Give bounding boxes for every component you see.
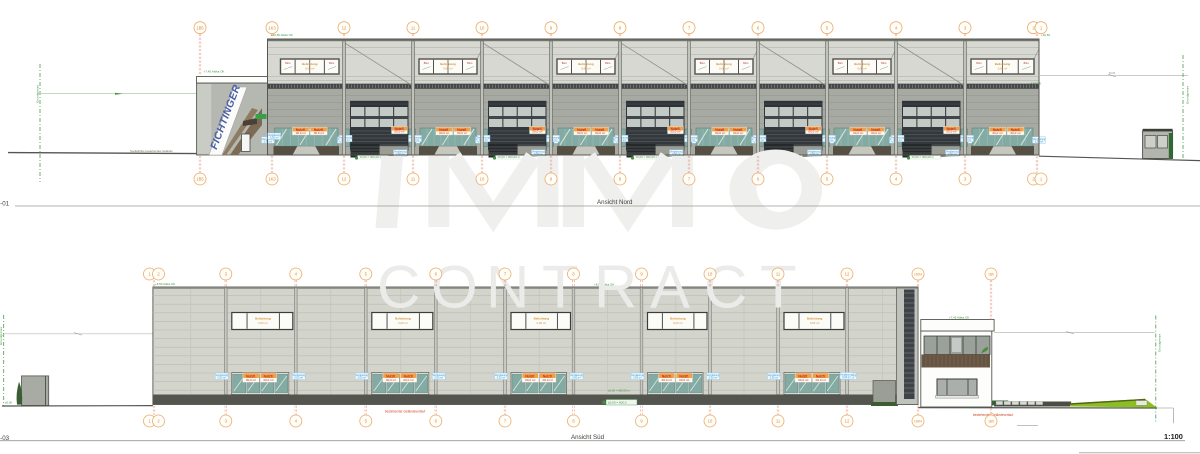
svg-text:T: T [542,254,579,321]
svg-text:1DK4: 1DK4 [914,273,922,277]
svg-text:12: 12 [845,419,850,424]
svg-text:Büro: Büro [467,62,473,65]
svg-text:00,0 m²: 00,0 m² [577,131,587,135]
svg-text:+8,50 Attika OK: +8,50 Attika OK [155,282,175,286]
svg-text:±0,00 = 000,00 m: ±0,00 = 000,00 m [498,155,521,159]
svg-text:Grundgrenze: Grundgrenze [1186,86,1190,104]
svg-text:00,0 m²: 00,0 m² [439,131,449,135]
svg-text:±0,00 = 000,00 m: ±0,00 = 000,00 m [912,155,935,159]
svg-text:±0,00 = 000,0: ±0,00 = 000,0 [608,401,627,405]
svg-text:00,0 m²: 00,0 m² [946,130,956,134]
svg-text:12: 12 [342,177,347,182]
svg-text:0,00 m²: 0,00 m² [673,321,683,325]
svg-text:0,00 m²: 0,00 m² [842,376,851,379]
svg-text:00,0 m²: 00,0 m² [679,378,689,382]
svg-text:00,0 m²: 00,0 m² [715,131,725,135]
svg-text:Belichtung: Belichtung [440,62,456,66]
svg-text:00,0 m²: 00,0 m² [670,130,680,134]
svg-text:00,0 m²: 00,0 m² [1010,131,1020,135]
svg-text:00,0 m²: 00,0 m² [595,131,605,135]
svg-text:45,00: 45,00 [1109,71,1116,75]
svg-text:00,0 m²: 00,0 m² [853,131,863,135]
svg-text:0,00 m²: 0,00 m² [709,377,718,380]
svg-text:00,0 m²: 00,0 m² [816,378,826,382]
svg-text:0,00 m²: 0,00 m² [218,377,227,380]
svg-text:Belichtung: Belichtung [578,62,594,66]
svg-text:00,0 m²: 00,0 m² [532,130,542,134]
svg-text:0,00 m²: 0,00 m² [443,67,453,71]
svg-text:00,0 m²: 00,0 m² [314,131,324,135]
svg-text:00,0 m²: 00,0 m² [263,378,273,382]
svg-text:N: N [486,254,529,321]
svg-text:O: O [431,254,478,321]
svg-text:10: 10 [708,272,713,277]
svg-text:Büro: Büro [700,62,706,65]
svg-text:00,0 m²: 00,0 m² [457,131,467,135]
svg-text:±0,00 = 000,00 m: ±0,00 = 000,00 m [608,388,630,392]
svg-text:Büro: Büro [743,62,749,65]
svg-text:A-03: A-03 [0,435,10,442]
svg-text:Büro: Büro [881,62,887,65]
svg-text:±0,00 = 000,00 m: ±0,00 = 000,00 m [636,155,659,159]
svg-text:±0,00: ±0,00 [5,400,12,404]
svg-text:00,0 m²: 00,0 m² [543,378,553,382]
svg-text:Sockelhöhe bestehendes Gelände: Sockelhöhe bestehendes Gelände [130,149,173,153]
svg-text:+7,45 Attika OK: +7,45 Attika OK [949,316,969,320]
svg-text:10: 10 [480,25,485,30]
svg-text:1B5: 1B5 [988,420,994,424]
svg-text:00,0 m²: 00,0 m² [246,378,256,382]
svg-text:0,00 m²: 0,00 m² [581,67,591,71]
svg-text:00,0 m²: 00,0 m² [296,131,306,135]
svg-text:bestehender Geländeverlauf: bestehender Geländeverlauf [385,410,425,414]
svg-text:Grundgrenze: Grundgrenze [36,85,40,103]
svg-text:+4,50 OK: +4,50 OK [1029,82,1041,86]
svg-text:12: 12 [845,272,850,277]
svg-text:Belichtung: Belichtung [716,62,732,66]
svg-text:00,0 m²: 00,0 m² [403,378,413,382]
svg-text:1B5: 1B5 [196,177,204,182]
svg-text:0,00 m²: 0,00 m² [305,67,315,71]
svg-text:00,0 m²: 00,0 m² [733,131,743,135]
svg-text:11: 11 [776,419,781,424]
svg-text:T: T [760,254,797,321]
svg-text:0,00 m²: 0,00 m² [258,321,268,325]
svg-text:0,00 m²: 0,00 m² [998,67,1008,71]
svg-text:A-01: A-01 [0,201,10,208]
svg-text:Büro: Büro [605,62,611,65]
svg-text:1K3: 1K3 [268,25,276,30]
svg-text:0,00 m²: 0,00 m² [857,67,867,71]
svg-text:Büro: Büro [1024,62,1030,65]
svg-text:Büro: Büro [424,62,430,65]
svg-text:Belichtung: Belichtung [854,62,870,66]
svg-text:1:100: 1:100 [1164,432,1183,441]
svg-text:Ansicht Nord: Ansicht Nord [597,199,633,206]
svg-text:Büro: Büro [329,62,335,65]
svg-text:11: 11 [411,25,416,30]
svg-text:Büro: Büro [285,62,291,65]
svg-text:11: 11 [776,272,781,277]
svg-text:00,0 m²: 00,0 m² [394,130,404,134]
svg-text:0,00 m²: 0,00 m² [719,67,729,71]
svg-text:00,0 m²: 00,0 m² [662,378,672,382]
svg-text:0,00 m²: 0,00 m² [435,377,444,380]
svg-text:C: C [704,254,747,321]
svg-text:0,00 m²: 0,00 m² [537,321,547,325]
svg-text:0,00 m²: 0,00 m² [295,377,304,380]
svg-text:12: 12 [342,25,347,30]
svg-text:1K3: 1K3 [268,177,276,182]
svg-text:Belichtung: Belichtung [995,62,1011,66]
svg-text:Grundgrenze: Grundgrenze [0,327,3,345]
svg-text:±0,00 = 000,00 m: ±0,00 = 000,00 m [360,155,383,159]
svg-text:C: C [377,254,420,321]
svg-text:0,00 m²: 0,00 m² [810,321,820,325]
svg-text:0,00 m²: 0,00 m² [633,377,642,380]
svg-text:Grundgrenze: Grundgrenze [1158,334,1162,352]
svg-text:+10,50 Attika OK: +10,50 Attika OK [271,33,293,37]
svg-text:11: 11 [411,177,416,182]
svg-text:Büro: Büro [976,62,982,65]
svg-text:1B5: 1B5 [196,25,204,30]
svg-text:00,0 m²: 00,0 m² [798,378,808,382]
svg-text:0,00 m²: 0,00 m² [398,321,408,325]
svg-text:10: 10 [708,419,713,424]
svg-text:00,0 m²: 00,0 m² [525,378,535,382]
svg-text:10: 10 [480,177,485,182]
svg-text:+7,45 Attika OK: +7,45 Attika OK [204,70,225,74]
svg-text:0,00 m²: 0,00 m² [572,377,581,380]
svg-text:1DK4: 1DK4 [914,420,922,424]
svg-text:00,0 m²: 00,0 m² [386,378,396,382]
svg-text:Ansicht Süd: Ansicht Süd [571,434,605,441]
svg-text:Büro: Büro [562,62,568,65]
svg-text:0,00 m²: 0,00 m² [264,140,273,143]
svg-text:0,00 m²: 0,00 m² [497,377,506,380]
svg-text:A: A [650,254,690,321]
svg-text:00,0 m²: 00,0 m² [992,131,1002,135]
svg-text:1B5: 1B5 [988,273,994,277]
svg-text:Belichtung: Belichtung [302,62,318,66]
svg-text:0,00 m²: 0,00 m² [770,377,779,380]
svg-text:00,0 m²: 00,0 m² [808,130,818,134]
svg-text:Büro: Büro [838,62,844,65]
svg-text:00,0 m²: 00,0 m² [871,131,881,135]
svg-text:0,00 m²: 0,00 m² [358,377,367,380]
svg-text:0,00 m²: 0,00 m² [270,137,279,140]
svg-text:R: R [594,254,637,321]
